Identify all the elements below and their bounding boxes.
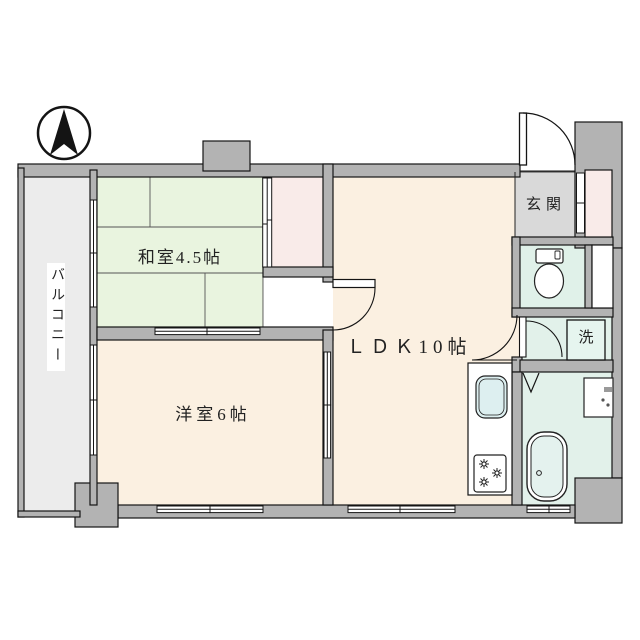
vestibule-floor [263,277,323,327]
shoe-cabinet [577,170,613,237]
bathtub-icon [527,432,567,501]
floor-plan-page: 和室4.5帖 洋室6帖 ＬＤＫ10帖 玄関 洗 バルコニー [0,0,640,640]
toilet-icon [535,249,564,298]
laundry-space-label: 洗 [567,331,605,346]
closet-sliding-door [263,178,272,267]
washitsu-room-label: 和室4.5帖 [108,249,252,266]
washbasin-icon [584,378,613,417]
balcony-label: バルコニー [47,263,65,371]
youshitsu-room-label: 洋室6帖 [138,406,288,423]
north-arrow-icon [38,107,90,159]
kitchen-sink-icon [476,376,507,418]
pipe-space [592,245,613,308]
stove-icon [474,455,506,492]
floor-plan-drawing [0,0,640,640]
sliding-door-washitsu-youshitsu [155,328,260,335]
genkan-room-label: 玄関 [514,198,578,213]
entrance-door [520,113,576,171]
sliding-door-youshitsu-ldk [324,352,331,458]
ldk-room-label: ＬＤＫ10帖 [328,338,490,357]
closet-floor [266,172,323,267]
